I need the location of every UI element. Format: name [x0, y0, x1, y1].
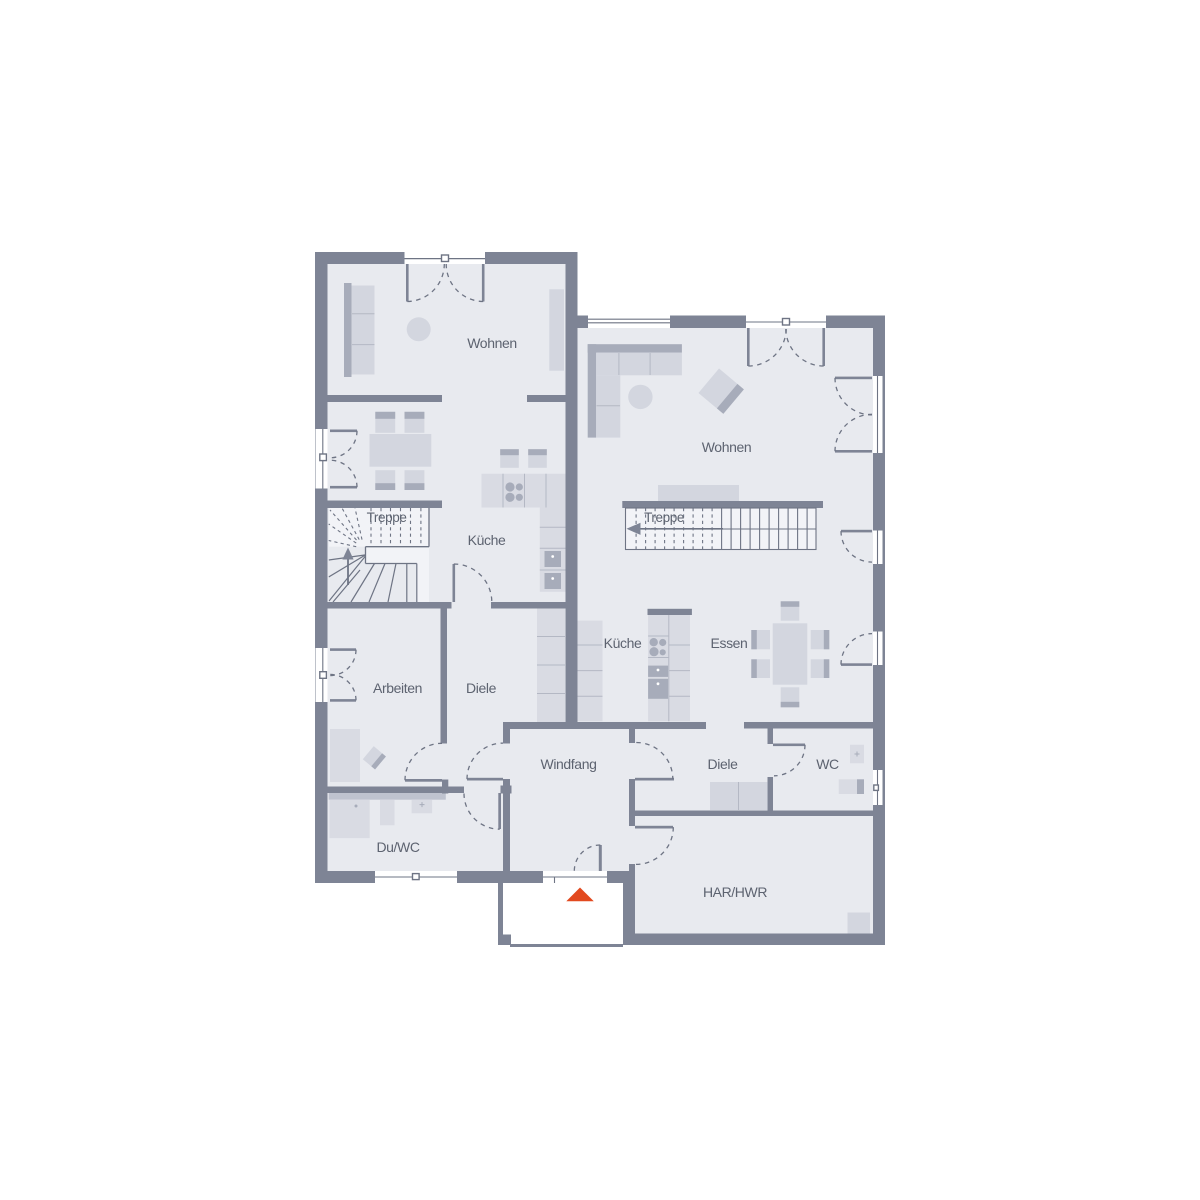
svg-text:Treppe: Treppe [367, 510, 407, 525]
svg-text:Arbeiten: Arbeiten [373, 680, 422, 696]
svg-text:Windfang: Windfang [541, 756, 597, 772]
svg-text:Wohnen: Wohnen [702, 439, 752, 455]
svg-text:Küche: Küche [604, 635, 642, 651]
svg-text:Essen: Essen [711, 635, 748, 651]
svg-text:Wohnen: Wohnen [467, 335, 517, 351]
svg-text:HAR/HWR: HAR/HWR [703, 884, 767, 900]
svg-text:Diele: Diele [466, 680, 497, 696]
svg-text:Diele: Diele [708, 756, 739, 772]
svg-text:Küche: Küche [468, 532, 506, 548]
svg-text:Du/WC: Du/WC [376, 839, 419, 855]
svg-text:WC: WC [816, 756, 839, 772]
svg-text:Treppe: Treppe [644, 510, 684, 525]
